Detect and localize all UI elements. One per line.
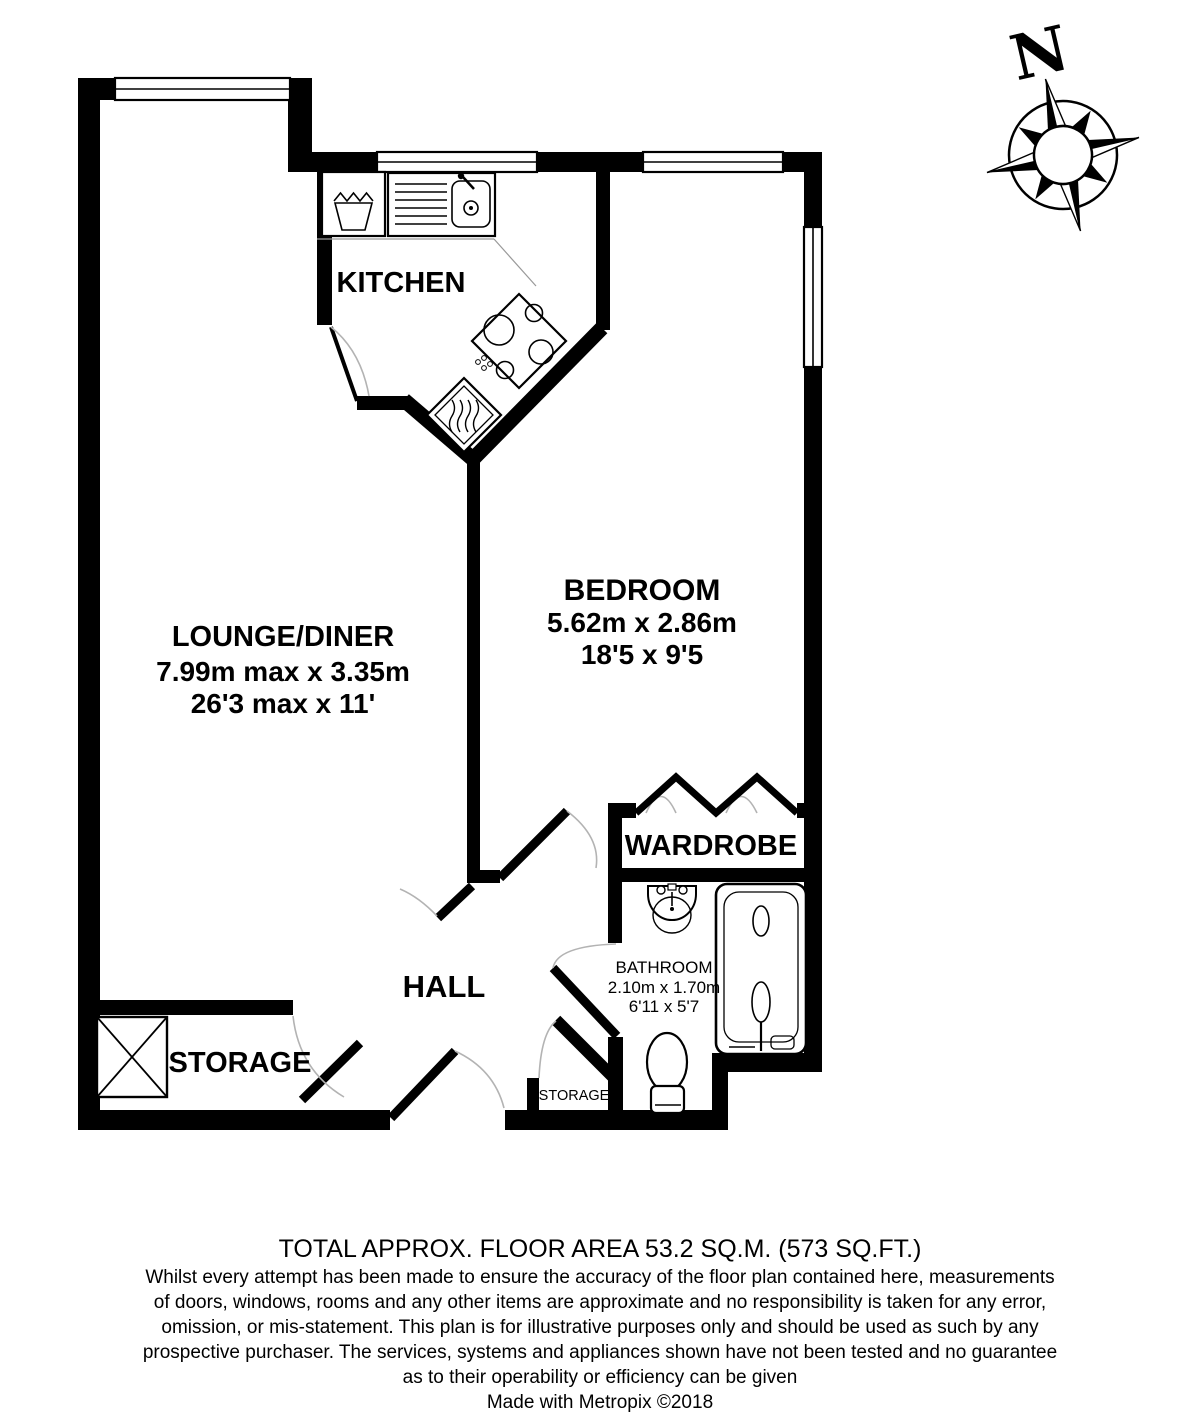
room-dim-bathroom-imperial: 6'11 x 5'7 xyxy=(629,997,699,1016)
wall-wardrobe-top-right-stub xyxy=(797,803,822,818)
wall-bathroom-bottom xyxy=(712,1053,822,1072)
disclaimer-line-2: of doors, windows, rooms and any other i… xyxy=(154,1292,1046,1313)
room-label-hall: HALL xyxy=(403,969,486,1004)
room-dim-bedroom-imperial: 18'5 x 9'5 xyxy=(581,639,703,670)
toilet-icon xyxy=(647,1033,687,1113)
disclaimer-line-1: Whilst every attempt has been made to en… xyxy=(145,1267,1054,1288)
wall-wardrobe-top-left-stub xyxy=(608,803,636,818)
room-label-storage-cupboard: STORAGE xyxy=(539,1088,610,1104)
footer: TOTAL APPROX. FLOOR AREA 53.2 SQ.M. (573… xyxy=(143,1235,1057,1413)
room-label-bedroom: BEDROOM xyxy=(564,574,721,607)
window-kitchen-top xyxy=(377,152,537,172)
door-entrance xyxy=(391,1051,504,1118)
total-floor-area: TOTAL APPROX. FLOOR AREA 53.2 SQ.M. (573… xyxy=(279,1235,922,1263)
window-bedroom-right xyxy=(804,227,822,367)
door-kitchen xyxy=(331,327,369,401)
compass-north-label: N xyxy=(1004,11,1076,95)
door-bedroom xyxy=(500,811,597,878)
floor-plan-page: N KITCHEN LOUNGE/DINER 7.99m max x 3.35m… xyxy=(0,0,1200,1423)
wall-lounge-bottom-internal xyxy=(78,1000,293,1015)
washing-machine-icon xyxy=(322,172,385,236)
door-hall-lounge xyxy=(400,886,472,918)
credit-line: Made with Metropix ©2018 xyxy=(487,1392,713,1413)
disclaimer-line-4: prospective purchaser. The services, sys… xyxy=(143,1342,1057,1363)
kitchen-sink-icon xyxy=(388,173,495,236)
disclaimer-line-3: omission, or mis-statement. This plan is… xyxy=(161,1317,1039,1338)
compass-rose-icon: N xyxy=(955,0,1156,248)
room-label-storage: STORAGE xyxy=(169,1047,312,1079)
basin-icon xyxy=(648,884,696,933)
room-label-bathroom: BATHROOM xyxy=(616,958,713,977)
wall-storage-cupboard-stub xyxy=(527,1078,539,1112)
room-dim-bathroom-metric: 2.10m x 1.70m xyxy=(608,978,720,997)
disclaimer-line-5: as to their operability or efficiency ca… xyxy=(403,1367,798,1388)
window-lounge-top xyxy=(115,78,290,100)
bathtub-icon xyxy=(716,884,806,1054)
room-label-kitchen: KITCHEN xyxy=(337,267,466,299)
wall-exterior-left xyxy=(78,78,100,1130)
kitchen-counter-edge-diagonal xyxy=(494,239,536,286)
room-dim-lounge-metric: 7.99m max x 3.35m xyxy=(156,656,410,687)
floor-plan-svg: N KITCHEN LOUNGE/DINER 7.99m max x 3.35m… xyxy=(0,0,1200,1423)
room-label-lounge: LOUNGE/DINER xyxy=(172,621,394,653)
room-label-wardrobe: WARDROBE xyxy=(625,830,797,862)
door-storage-cupboard xyxy=(539,1021,556,1078)
wall-bedroom-door-stub xyxy=(467,870,500,883)
wardrobe-bifold-door xyxy=(636,777,797,813)
room-dim-bedroom-metric: 5.62m x 2.86m xyxy=(547,607,737,638)
wall-kitchen-right xyxy=(596,172,610,330)
wall-wardrobe-bottom xyxy=(608,868,822,882)
window-bedroom-top xyxy=(643,152,783,172)
wall-divider-lounge-bedroom xyxy=(467,455,480,883)
wall-bottom-right xyxy=(505,1110,728,1130)
storage-crossbox-icon xyxy=(97,1017,167,1097)
wall-bottom-left xyxy=(78,1110,390,1130)
room-dim-lounge-imperial: 26'3 max x 11' xyxy=(191,688,376,719)
